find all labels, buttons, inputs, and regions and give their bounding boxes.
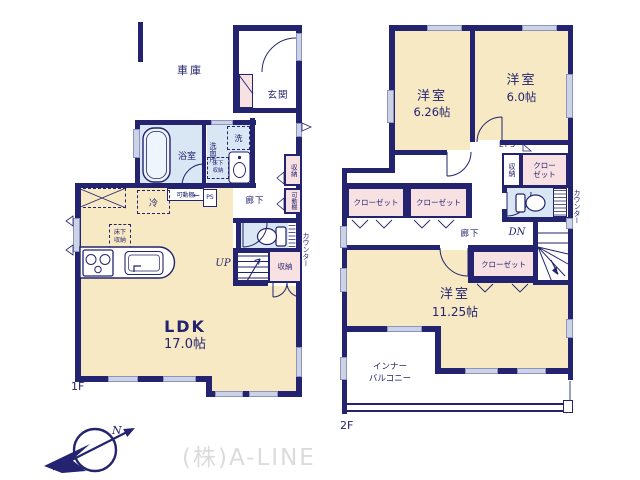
corridor-label-1f: 廊下 bbox=[235, 196, 275, 206]
wall bbox=[75, 183, 81, 382]
room1-label: 洋室 bbox=[394, 89, 470, 105]
wall bbox=[233, 25, 239, 74]
storage-label: 収納 bbox=[290, 164, 297, 177]
room3-label: 洋室 bbox=[395, 287, 515, 303]
washer-space: 洗 bbox=[227, 126, 250, 150]
window bbox=[566, 218, 573, 229]
window bbox=[566, 319, 573, 338]
inner-balcony-line2: バルコニー bbox=[369, 374, 411, 384]
room3-size-label: 11.25帖 bbox=[393, 305, 517, 319]
room1-size-label: 6.26帖 bbox=[393, 106, 471, 120]
wall bbox=[533, 280, 573, 285]
fridge-label: 冷 bbox=[149, 196, 158, 209]
eps-label: EPS bbox=[499, 140, 516, 149]
window bbox=[215, 391, 243, 397]
wall bbox=[236, 218, 241, 253]
wall bbox=[389, 150, 447, 155]
window bbox=[296, 33, 302, 61]
underfloor-storage-kitchen: 床下収納 bbox=[109, 224, 131, 249]
wall bbox=[342, 168, 394, 173]
company-watermark: (株)A-LINE bbox=[182, 438, 316, 472]
closet-label: クローゼット bbox=[354, 197, 399, 208]
window bbox=[427, 25, 462, 31]
room-ldk bbox=[212, 376, 296, 391]
window bbox=[517, 368, 546, 374]
underfloor-storage-label: 床下収納 bbox=[114, 229, 127, 243]
counter-label-1f: カウンター bbox=[302, 226, 309, 272]
balcony-railing-post bbox=[563, 400, 573, 413]
floor1-label: 1F bbox=[71, 380, 84, 393]
window bbox=[73, 218, 80, 252]
washer-label: 洗 bbox=[235, 133, 243, 144]
window bbox=[387, 326, 422, 332]
movable-shelf-label: 可動棚 bbox=[176, 190, 194, 199]
ldk-size-label: 17.0帖 bbox=[133, 337, 237, 353]
wall bbox=[233, 280, 268, 286]
balcony-railing bbox=[347, 403, 570, 405]
vanity-counter-2f bbox=[553, 188, 567, 217]
wall bbox=[250, 118, 255, 188]
stair-storage-1f: 収納 bbox=[268, 250, 302, 283]
window bbox=[522, 25, 557, 31]
washroom-label: 洗面所 bbox=[209, 128, 216, 176]
fridge-space: 冷 bbox=[137, 190, 170, 214]
room2-size-label: 6.0帖 bbox=[475, 91, 568, 105]
movable-shelf-side-1f: 可動棚 bbox=[284, 188, 302, 214]
room-ldk bbox=[233, 286, 296, 376]
balcony-railing-post bbox=[569, 381, 571, 401]
pantry-hatch bbox=[78, 188, 126, 208]
movable-shelf-label: 可動棚 bbox=[290, 192, 296, 210]
pipe-space: PS bbox=[203, 189, 217, 207]
storage-label: 収納 bbox=[508, 163, 515, 177]
door-arc-entrance bbox=[262, 38, 296, 72]
closet-label: クローゼット bbox=[481, 259, 526, 270]
window bbox=[108, 376, 138, 382]
window bbox=[296, 347, 302, 377]
bath-label: 浴室 bbox=[167, 152, 207, 163]
compass-n-label: N bbox=[112, 424, 122, 437]
window bbox=[211, 120, 233, 125]
closet-middle-2f: クローゼット bbox=[472, 250, 535, 278]
window bbox=[163, 376, 196, 382]
counter-hatch-1f bbox=[289, 222, 296, 250]
balcony-railing bbox=[347, 410, 570, 412]
dn-label: DN bbox=[504, 227, 530, 239]
window bbox=[465, 368, 498, 374]
room2-label: 洋室 bbox=[475, 73, 568, 89]
window bbox=[296, 123, 302, 137]
up-label: UP bbox=[209, 258, 237, 270]
window bbox=[249, 391, 278, 397]
wall bbox=[435, 368, 573, 374]
wall bbox=[468, 183, 472, 218]
closet-top-right-2f: クローゼット bbox=[521, 153, 568, 187]
ldk-label: LDK bbox=[135, 317, 235, 336]
room-toilet-1f bbox=[238, 223, 288, 248]
stairwell-2f bbox=[538, 222, 568, 280]
closet-label: クローゼット bbox=[416, 197, 461, 208]
door-arc-room1-2f bbox=[447, 152, 471, 176]
wall bbox=[233, 25, 302, 31]
wall bbox=[233, 108, 302, 113]
inner-balcony-label: インナー バルコニー bbox=[360, 361, 420, 386]
room-yoshitsu-1125 bbox=[441, 330, 568, 370]
window bbox=[340, 357, 347, 380]
closet-label: クローゼット bbox=[532, 161, 557, 179]
entrance-label: 玄関 bbox=[256, 90, 300, 101]
ps-arrow: ← bbox=[193, 191, 200, 201]
ps-label: PS bbox=[206, 194, 214, 201]
closet-left-2-2f: クローゼット bbox=[409, 187, 468, 218]
wall bbox=[138, 22, 143, 62]
wall bbox=[468, 278, 535, 283]
wall bbox=[342, 245, 440, 250]
storage-2f: 収納 bbox=[502, 153, 521, 187]
counter-label-2f: カウンター bbox=[573, 183, 580, 229]
closet-left-1-2f: クローゼット bbox=[347, 187, 405, 218]
wall bbox=[135, 120, 256, 125]
inner-balcony-line1: インナー bbox=[373, 362, 407, 372]
garage-label: 車庫 bbox=[166, 64, 214, 77]
shoe-cabinet bbox=[239, 74, 253, 108]
wall bbox=[502, 217, 570, 222]
room-toilet-2f bbox=[507, 187, 553, 217]
window bbox=[340, 268, 347, 292]
window bbox=[340, 226, 347, 248]
floor-plan: (株)A-LINE bbox=[0, 0, 640, 480]
storage-label: 収納 bbox=[278, 261, 293, 272]
stairs-up-1f bbox=[238, 256, 268, 281]
wall bbox=[233, 218, 302, 223]
storage-side-1f: 収納 bbox=[284, 154, 302, 186]
corridor-label-2f: 廊下 bbox=[450, 229, 490, 239]
window bbox=[133, 129, 140, 158]
floor2-label: 2F bbox=[340, 419, 353, 432]
wall bbox=[435, 326, 441, 374]
